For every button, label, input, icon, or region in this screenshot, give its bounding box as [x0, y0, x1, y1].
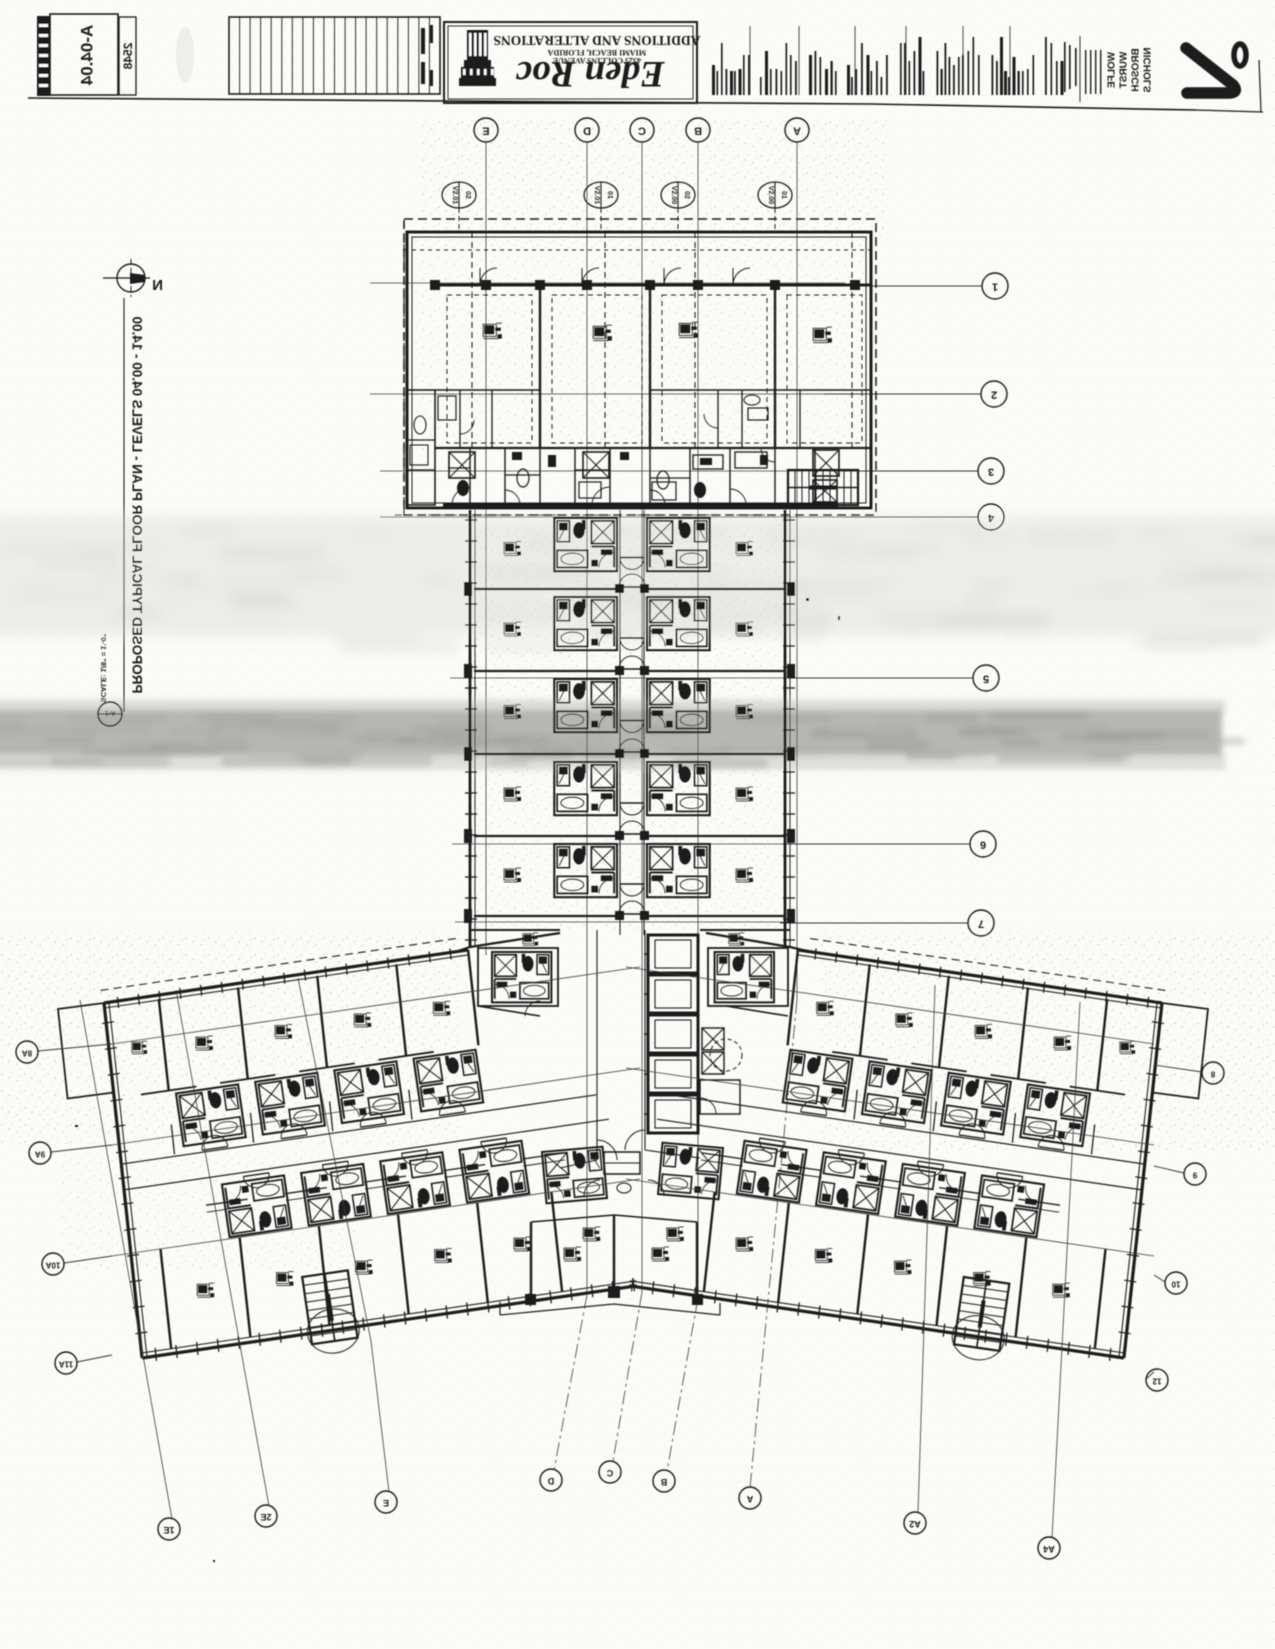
- svg-text:11A: 11A: [59, 1359, 73, 1368]
- svg-text:V2.01: V2.01: [593, 186, 600, 204]
- svg-text:02: 02: [464, 191, 471, 199]
- svg-text:5: 5: [983, 673, 989, 685]
- svg-text:E: E: [482, 125, 489, 137]
- svg-text:A-04.04: A-04.04: [77, 25, 96, 86]
- svg-text:01: 01: [606, 191, 613, 199]
- svg-text:7: 7: [978, 918, 984, 930]
- svg-text:WURST: WURST: [1119, 52, 1130, 89]
- svg-text:2548: 2548: [121, 43, 135, 70]
- svg-text:02: 02: [683, 191, 690, 199]
- svg-text:D: D: [547, 1476, 554, 1486]
- svg-text:C: C: [638, 125, 646, 137]
- svg-text:1E: 1E: [163, 1525, 174, 1535]
- svg-text:ADDITIONS AND ALTERATIONS: ADDITIONS AND ALTERATIONS: [493, 33, 700, 48]
- svg-text:A-1: A-1: [104, 709, 115, 716]
- svg-text:2: 2: [991, 389, 997, 401]
- svg-text:SCALE: 1/8" = 1'-0": SCALE: 1/8" = 1'-0": [99, 633, 108, 702]
- svg-text:E: E: [383, 1498, 389, 1508]
- svg-text:1: 1: [992, 281, 998, 293]
- svg-text:8A: 8A: [22, 1048, 32, 1057]
- svg-text:9: 9: [1192, 1170, 1197, 1179]
- svg-text:01: 01: [780, 191, 787, 199]
- svg-text:A2: A2: [909, 1519, 921, 1529]
- svg-text:12: 12: [1152, 1376, 1161, 1385]
- svg-text:BROSCH: BROSCH: [1131, 48, 1142, 91]
- svg-text:10A: 10A: [45, 1260, 60, 1269]
- svg-text:B: B: [660, 1477, 667, 1487]
- svg-text:V2.01: V2.01: [451, 186, 458, 204]
- svg-text:Eden Roc: Eden Roc: [515, 53, 665, 94]
- svg-text:3: 3: [988, 466, 994, 478]
- svg-text:C: C: [606, 1468, 613, 1478]
- svg-text:N: N: [152, 277, 163, 294]
- svg-text:WOLFE: WOLFE: [1107, 52, 1118, 88]
- svg-text:D: D: [583, 125, 591, 137]
- svg-text:A: A: [746, 1494, 753, 1504]
- svg-text:2E: 2E: [260, 1512, 271, 1522]
- svg-text:B: B: [694, 125, 702, 137]
- svg-text:4: 4: [987, 512, 994, 524]
- svg-text:V2.00: V2.00: [670, 186, 677, 204]
- svg-text:PROPOSED TYPICAL FLOOR PLAN -: PROPOSED TYPICAL FLOOR PLAN - LEVELS 04.…: [129, 316, 144, 693]
- svg-text:V2.00: V2.00: [767, 186, 774, 204]
- svg-text:A4: A4: [1043, 1544, 1055, 1554]
- svg-text:8: 8: [1210, 1069, 1215, 1078]
- svg-text:10: 10: [1171, 1279, 1180, 1288]
- svg-text:6: 6: [980, 839, 986, 851]
- svg-text:NICHOLS: NICHOLS: [1143, 48, 1154, 93]
- svg-text:A: A: [793, 125, 801, 137]
- svg-text:9A: 9A: [35, 1149, 45, 1158]
